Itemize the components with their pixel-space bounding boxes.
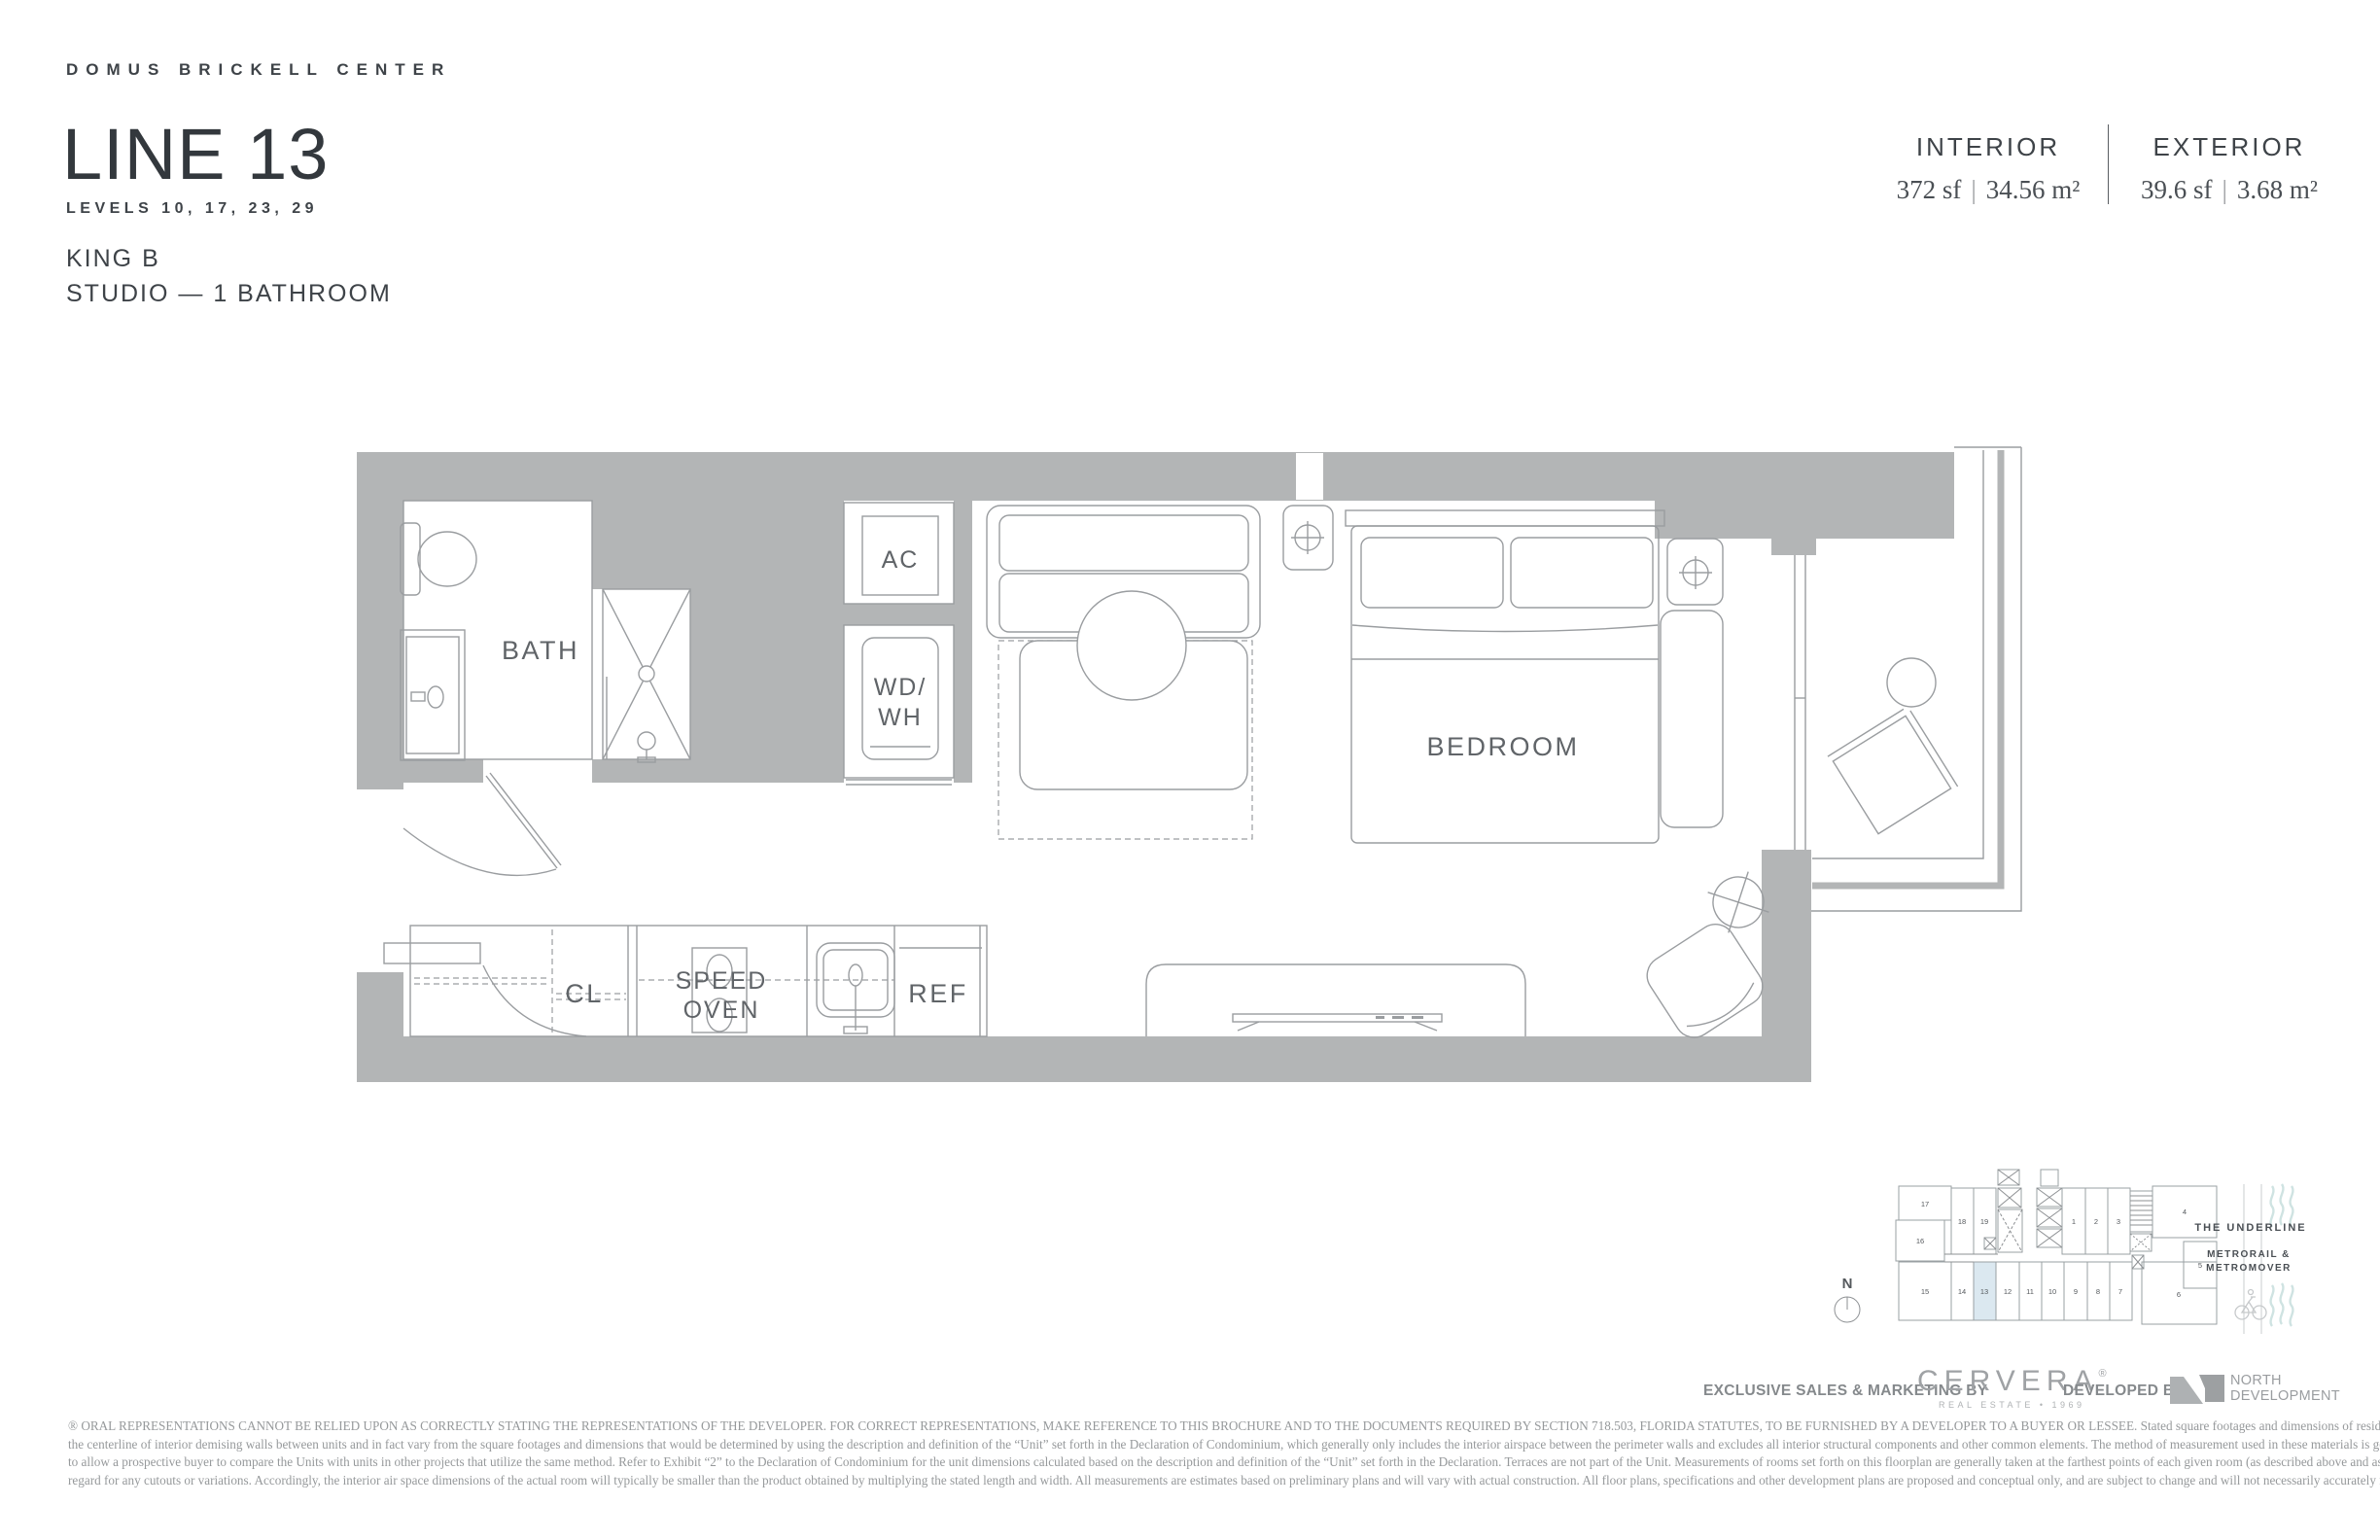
svg-text:13: 13	[1980, 1287, 1988, 1296]
svg-text:5: 5	[2198, 1261, 2202, 1270]
interior-values: 372 sf|34.56 m²	[1867, 175, 2110, 205]
bedroom-label: BEDROOM	[1426, 732, 1579, 761]
separator: |	[2212, 175, 2236, 204]
svg-text:17: 17	[1921, 1200, 1929, 1208]
lounge-chair-icon	[1640, 917, 1770, 1045]
svg-text:6: 6	[2177, 1290, 2181, 1299]
disclaimer-line: to allow a prospective buyer to compare …	[68, 1453, 2316, 1472]
exterior-label: EXTERIOR	[2108, 132, 2351, 162]
developed-by-label: DEVELOPED BY	[2063, 1382, 2185, 1400]
unit-type-label: KING B	[66, 245, 160, 273]
bath-label: BATH	[502, 636, 579, 665]
disclaimer-line: regard for any cutouts or variations. Ac…	[68, 1472, 2316, 1490]
shower-icon	[603, 589, 690, 762]
svg-text:7: 7	[2118, 1287, 2122, 1296]
bed-icon	[1346, 510, 1664, 843]
legal-disclaimer: ® ORAL REPRESENTATIONS CANNOT BE RELIED …	[68, 1417, 2316, 1489]
closet-label: CL	[565, 979, 604, 1008]
disclaimer-line: ® ORAL REPRESENTATIONS CANNOT BE RELIED …	[68, 1417, 2316, 1436]
north-development-name: NORTH DEVELOPMENT	[2230, 1373, 2340, 1404]
north-development-logo-icon	[2170, 1367, 2224, 1406]
north-arrow-icon: N	[1835, 1276, 1860, 1322]
metrorail-label-line1: METRORAIL &	[2207, 1249, 2291, 1260]
metrorail-label-line2: METROMOVER	[2206, 1263, 2292, 1274]
svg-text:16: 16	[1916, 1237, 1924, 1245]
cervera-tagline: REAL ESTATE • 1969	[1917, 1400, 2107, 1410]
svg-text:2: 2	[2094, 1217, 2098, 1226]
toilet-icon	[401, 523, 476, 595]
svg-text:12: 12	[2004, 1287, 2012, 1296]
svg-text:18: 18	[1958, 1217, 1966, 1226]
svg-text:8: 8	[2096, 1287, 2100, 1296]
round-table-icon	[1077, 591, 1186, 700]
wd-label-line2: WH	[878, 704, 923, 731]
nightstand-right-icon	[1667, 539, 1723, 605]
page-title: LINE 13	[62, 113, 329, 195]
exterior-m2: 3.68 m²	[2237, 175, 2318, 204]
svg-text:4: 4	[2183, 1207, 2187, 1216]
sofa-icon	[987, 506, 1260, 839]
svg-text:9: 9	[2074, 1287, 2078, 1296]
interior-label: INTERIOR	[1867, 132, 2110, 162]
svg-text:1: 1	[2072, 1217, 2076, 1226]
exterior-stats: EXTERIOR 39.6 sf|3.68 m²	[2108, 132, 2351, 205]
svg-text:3: 3	[2117, 1217, 2120, 1226]
interior-sf: 372 sf	[1897, 175, 1962, 204]
exterior-values: 39.6 sf|3.68 m²	[2108, 175, 2351, 205]
exterior-sf: 39.6 sf	[2141, 175, 2213, 204]
levels-subtitle: LEVELS 10, 17, 23, 29	[66, 200, 318, 218]
svg-text:10: 10	[2048, 1287, 2056, 1296]
ac-label: AC	[882, 546, 920, 574]
keyplan-building	[1896, 1170, 2217, 1324]
registered-mark: ®	[2099, 1368, 2107, 1380]
svg-text:19: 19	[1980, 1217, 1988, 1226]
speed-oven-label-line2: OVEN	[683, 997, 760, 1024]
tv-console-icon	[1146, 964, 1525, 1036]
bedroom-bench-icon	[1661, 611, 1723, 827]
bath-door	[403, 773, 561, 875]
svg-text:N: N	[1842, 1276, 1853, 1292]
interior-m2: 34.56 m²	[1986, 175, 2081, 204]
keyplan: N	[1828, 1162, 2333, 1366]
nightstand-left-icon	[1283, 506, 1333, 570]
speed-oven-label-line1: SPEED	[676, 967, 768, 995]
wd-label-line1: WD/	[874, 674, 927, 701]
refrigerator-label: REF	[908, 979, 968, 1008]
transit-annotations: THE UNDERLINE METRORAIL & METROMOVER	[2194, 1184, 2306, 1334]
vanity-sink-icon	[401, 630, 465, 760]
unit-layout-label: STUDIO — 1 BATHROOM	[66, 280, 392, 308]
kitchen-sink-icon	[817, 943, 894, 1033]
brand-name: DOMUS BRICKELL CENTER	[66, 60, 451, 80]
sliding-door	[1795, 555, 1805, 850]
separator: |	[1961, 175, 1985, 204]
keyplan-unit-numbers: 17 16 18 19 1 2 3 4 5 15 14 13 12 11 10 …	[1916, 1200, 2202, 1299]
interior-stats: INTERIOR 372 sf|34.56 m²	[1867, 132, 2110, 205]
disclaimer-line: the centerline of interior demising wall…	[68, 1436, 2316, 1454]
svg-text:11: 11	[2026, 1287, 2034, 1296]
underline-label: THE UNDERLINE	[2194, 1222, 2306, 1234]
entry-door	[384, 943, 586, 1036]
balcony-chair-icon	[1828, 707, 1958, 837]
svg-text:15: 15	[1921, 1287, 1929, 1296]
balcony-table-icon	[1887, 658, 1936, 707]
floor-plan: BATH AC WD/ WH	[350, 437, 2042, 1099]
svg-text:14: 14	[1958, 1287, 1966, 1296]
